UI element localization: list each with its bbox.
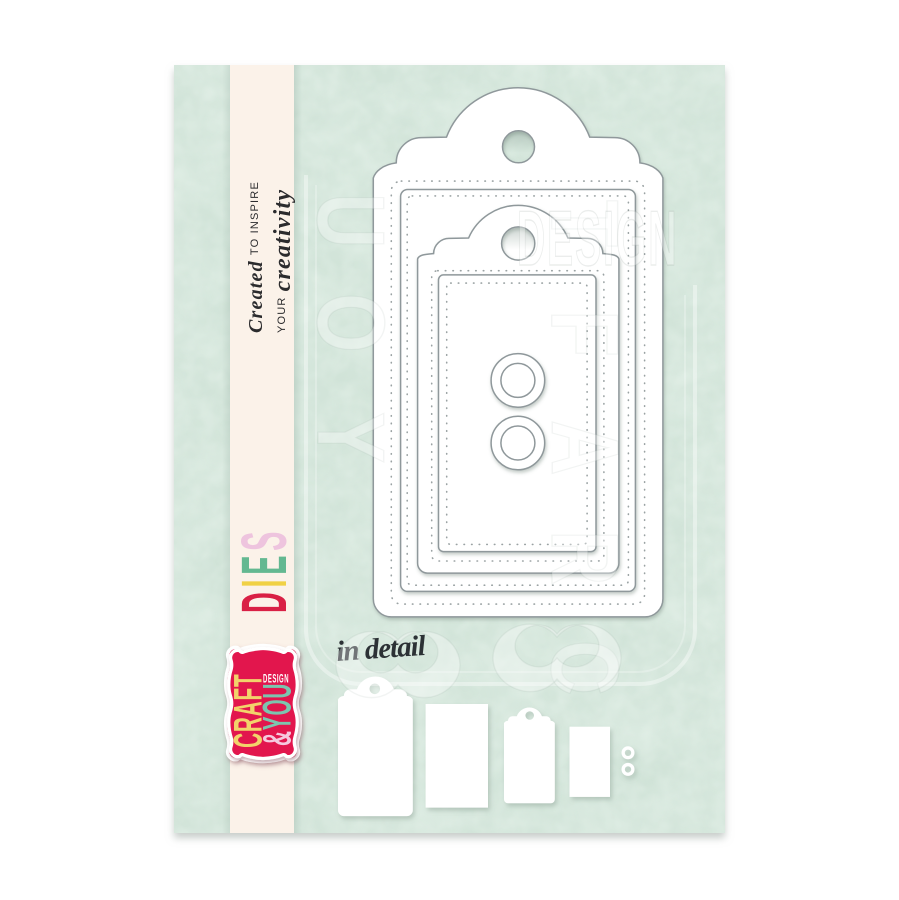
svg-text:DIES: DIES (228, 527, 300, 613)
svg-text:&YOU: &YOU (254, 683, 299, 746)
svg-text:O: O (297, 293, 404, 353)
svg-text:DESIGN: DESIGN (263, 672, 289, 685)
svg-text:Y: Y (297, 412, 404, 463)
svg-text:DESIGN: DESIGN (517, 195, 679, 282)
svg-text:F: F (531, 310, 638, 357)
svg-text:R: R (531, 530, 638, 585)
svg-text:U: U (297, 193, 404, 248)
svg-text:A: A (531, 420, 638, 475)
